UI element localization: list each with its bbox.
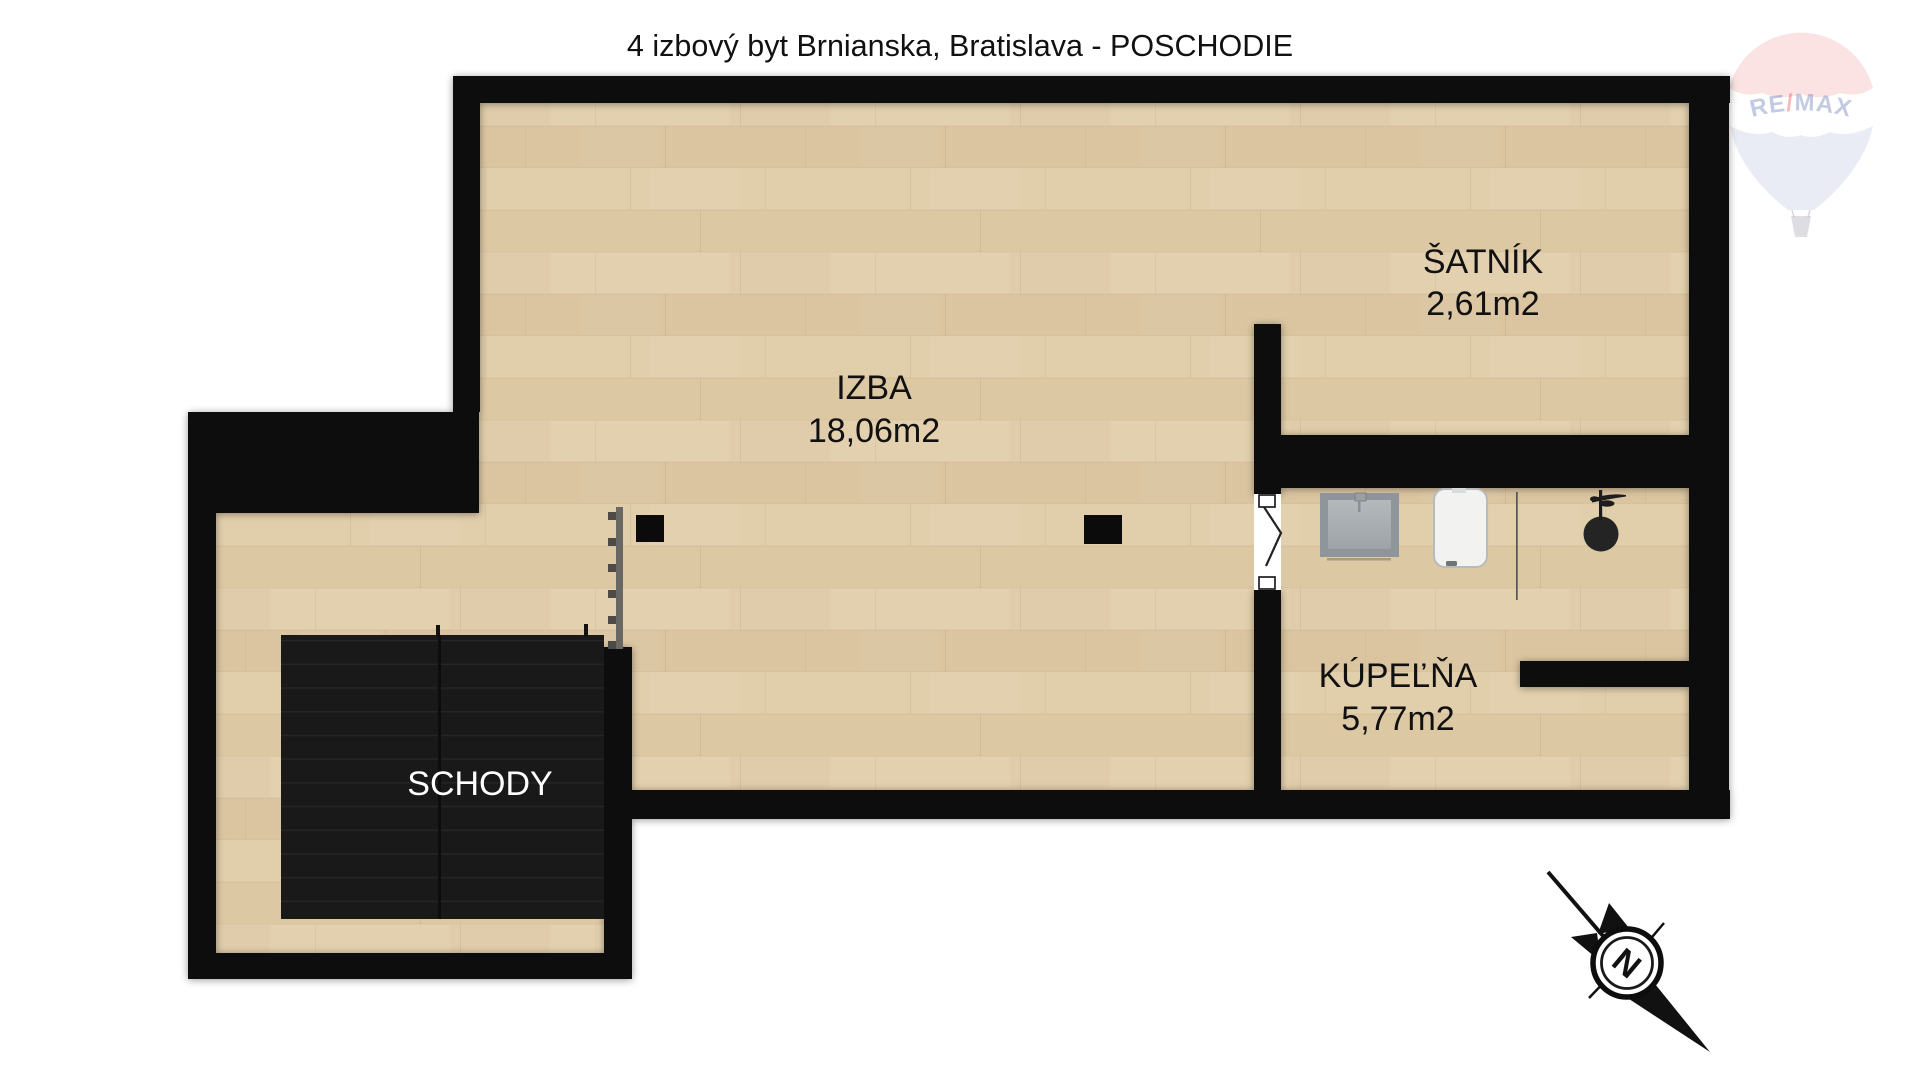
- svg-text:ŠATNÍK: ŠATNÍK: [1423, 243, 1544, 281]
- svg-text:IZBA: IZBA: [836, 369, 912, 407]
- svg-text:2,61m2: 2,61m2: [1426, 285, 1539, 323]
- svg-text:4 izbový byt Brnianska, Bratis: 4 izbový byt Brnianska, Bratislava - POS…: [627, 29, 1293, 63]
- svg-text:5,77m2: 5,77m2: [1341, 700, 1454, 738]
- svg-text:SCHODY: SCHODY: [407, 765, 552, 803]
- svg-text:KÚPEĽŇA: KÚPEĽŇA: [1319, 657, 1478, 695]
- svg-text:18,06m2: 18,06m2: [808, 412, 940, 450]
